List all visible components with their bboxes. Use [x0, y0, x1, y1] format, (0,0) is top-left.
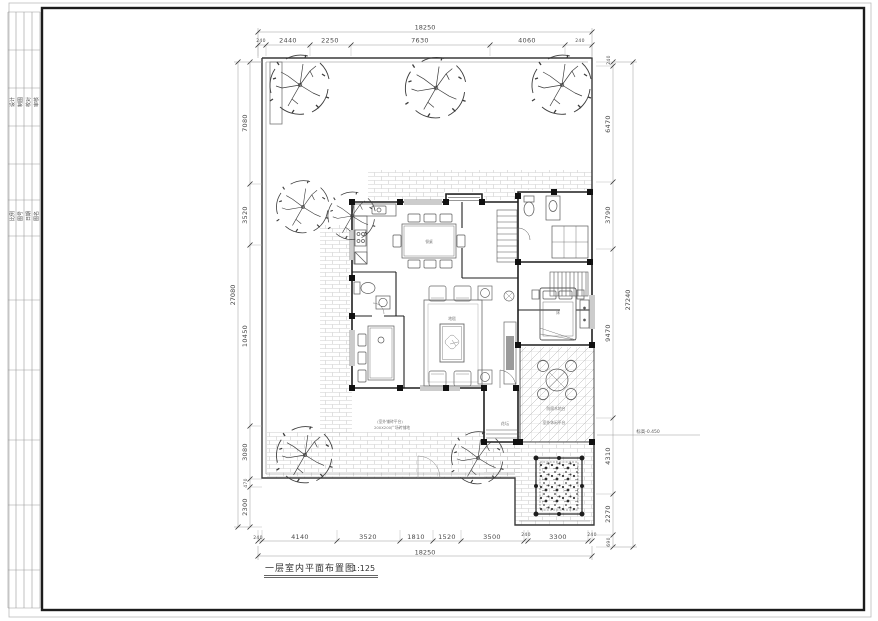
- paving-annotation-1: (室外铺砖平台): [377, 419, 403, 424]
- dim-seg: 10450: [241, 325, 249, 347]
- rug-label: 地毯: [448, 316, 456, 321]
- floor-plan-drawing: 设计 制图 校对 审核 比例 图号 日期 图名: [0, 0, 878, 621]
- tb-label: 审核: [33, 97, 40, 107]
- tb-label: 制图: [17, 97, 24, 107]
- terrace-annotation-1: 防腐木地台: [547, 406, 566, 411]
- dim-right: 240 6470 3790 9470 4310 2270 690 27240: [596, 55, 637, 549]
- bed-label: 床: [556, 310, 560, 315]
- dim-seg: 3520: [359, 533, 377, 541]
- paving-annotation-2: 200X200广场砖铺地: [374, 425, 410, 430]
- dim-seg: 470: [243, 478, 249, 488]
- dim-bottom: 240 4140 3520 1810 1520 3500 240 3300 24…: [253, 530, 597, 560]
- dim-seg: 240: [521, 532, 531, 538]
- title-block-labels: 设计 制图 校对 审核 比例 图号 日期 图名: [9, 97, 40, 221]
- drawing-sheet: 设计 制图 校对 审核 比例 图号 日期 图名: [0, 0, 878, 621]
- tb-label: 比例: [9, 211, 16, 221]
- dim-right-overall: 27240: [624, 290, 632, 311]
- dim-top-overall: 18250: [415, 24, 436, 32]
- tb-label: 设计: [9, 97, 16, 107]
- dim-seg: 2440: [279, 37, 297, 45]
- terrace: [520, 345, 594, 442]
- dim-seg: 240: [253, 535, 263, 541]
- dim-seg: 3300: [549, 533, 567, 541]
- flower-bed: [534, 456, 585, 517]
- tb-label: 图号: [18, 211, 24, 221]
- dim-seg: 2250: [321, 37, 339, 45]
- dim-seg: 7630: [411, 37, 429, 45]
- dim-bottom-overall: 18250: [415, 549, 436, 557]
- dim-seg: 4310: [604, 447, 612, 465]
- level-annotation: 标高-0.450: [636, 428, 660, 435]
- dim-seg: 240: [587, 532, 597, 538]
- dim-seg: 3790: [604, 206, 612, 224]
- dim-seg: 2270: [604, 505, 612, 523]
- plan-scale: 1:125: [352, 564, 375, 573]
- tb-label: 图名: [33, 211, 40, 221]
- tb-label: 日期: [26, 211, 32, 221]
- dim-seg: 240: [575, 38, 585, 44]
- tb-label: 校对: [25, 97, 32, 107]
- plan-title: 一层室内平面布置图: [265, 562, 355, 574]
- dim-seg: 690: [606, 537, 612, 547]
- dim-seg: 1520: [438, 533, 456, 541]
- dim-seg: 3080: [241, 443, 249, 461]
- dim-seg: 9470: [604, 324, 612, 342]
- dim-seg: 1810: [407, 533, 425, 541]
- dim-seg: 7080: [241, 114, 249, 132]
- dim-seg: 4140: [291, 533, 309, 541]
- dim-seg: 240: [256, 38, 266, 44]
- dim-seg: 2300: [241, 498, 249, 516]
- flowerbed-label: 花坛: [501, 420, 509, 427]
- dim-seg: 3520: [241, 206, 249, 224]
- dim-seg: 3500: [483, 533, 501, 541]
- dim-left: 7080 3520 10450 3080 470 2300 27080: [229, 60, 262, 530]
- dim-seg: 4060: [518, 37, 536, 45]
- dim-left-overall: 27080: [229, 285, 237, 306]
- dim-seg: 6470: [604, 115, 612, 133]
- plan-title-group: 一层室内平面布置图 1:125: [264, 562, 378, 578]
- terrace-annotation-2: 室外休闲平台: [543, 420, 566, 425]
- dim-top: 18250 240 2440 2250 7630 4060 240: [256, 24, 595, 59]
- dim-seg: 240: [606, 55, 612, 65]
- dining-table-label: 餐桌: [425, 239, 433, 244]
